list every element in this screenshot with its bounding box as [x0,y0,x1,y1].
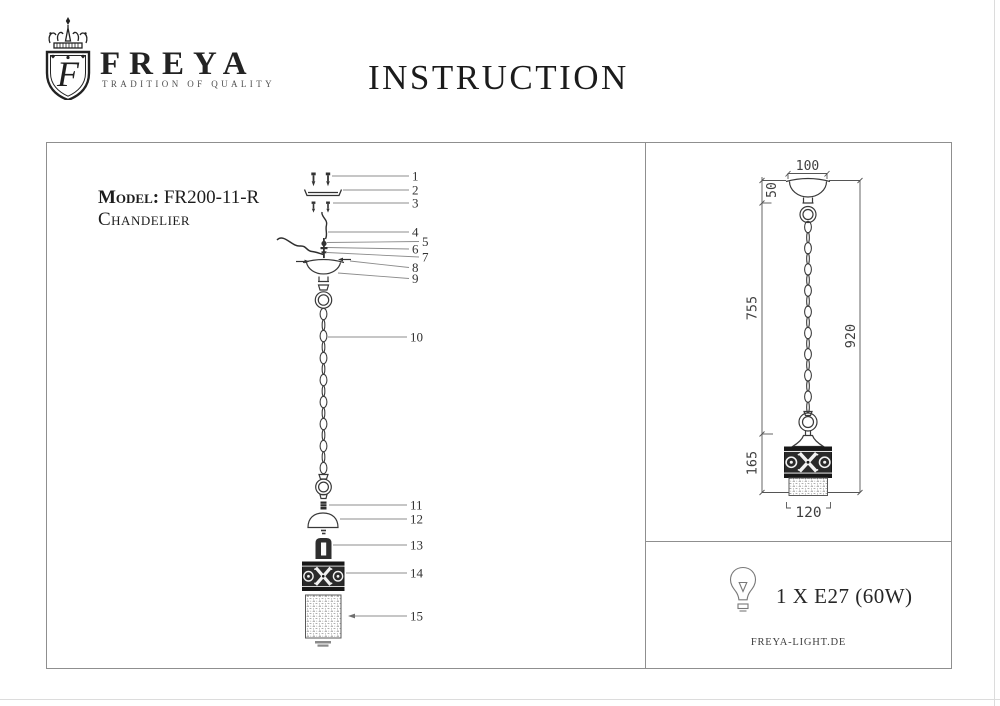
part-label: 15 [410,609,423,624]
instruction-page: F FREYA TRADITION OF QUALITY INSTRUCTION… [0,0,1000,706]
part-label: 13 [410,538,423,553]
chain [805,221,812,412]
part-label: 11 [410,498,423,513]
ornate-band [784,447,832,479]
stem-fittings [321,238,328,258]
lamp-spec: 1 X E27 (60W) [776,584,913,609]
dim-chain-length: 755 [745,296,761,320]
chain-loop-top [315,285,331,308]
part-label: 4 [412,225,419,240]
threaded-nipple [321,502,327,510]
leader-lines [327,176,419,618]
dim-canopy-height: 50 [765,182,780,198]
chain-loop-bottom [316,475,332,499]
mounting-screws-top [311,173,330,187]
dim-overall-height: 920 [843,324,859,348]
part-label: 3 [412,196,419,211]
fixture-outline [786,179,830,223]
part-label: 9 [412,271,419,286]
bulb-icon [728,566,758,622]
part-label: 10 [410,330,423,345]
lamp-spec-panel: 1 X E27 (60W) FREYA-LIGHT.DE [646,542,951,668]
website: FREYA-LIGHT.DE [646,637,951,648]
freya-crest-icon: F [44,14,92,100]
right-panel: 100 50 755 920 165 120 1 X E27 (60W) FRE… [645,142,952,669]
brand-name: FREYA [100,46,256,83]
dome-cap [308,513,338,534]
exploded-view-panel: Model: FR200-11-R Chandelier [46,142,646,669]
power-cable [277,238,324,254]
freya-logo: F FREYA TRADITION OF QUALITY [40,13,300,108]
brand-monogram: F [56,54,80,94]
page-title: INSTRUCTION [368,58,629,98]
dimensions-panel: 100 50 755 920 165 120 [646,143,951,542]
part-label: 5 [422,234,429,249]
chain [320,308,327,473]
dimension-diagram: 100 50 755 920 165 120 [646,143,951,541]
lamp-socket [316,538,332,559]
brand-tagline: TRADITION OF QUALITY [102,79,275,89]
part-label: 1 [412,169,419,184]
dim-body-width: 120 [795,505,821,521]
glass-shade [306,595,342,638]
bulb-base-hint [315,641,331,647]
part-number-labels: 1 2 3 4 5 6 7 8 9 10 11 12 13 14 15 [410,169,429,624]
dim-canopy-width: 100 [796,159,819,174]
ball-loop [793,412,824,447]
part-label: 6 [412,242,419,257]
scan-edge [994,0,995,706]
suspension-wire [322,212,327,239]
exploded-diagram: 1 2 3 4 5 6 7 8 9 10 11 12 13 14 15 [47,143,645,668]
dim-body-height: 165 [745,451,761,475]
canopy-dome [303,260,344,282]
part-label: 7 [422,250,429,265]
ornate-band [302,562,345,592]
scan-edge [0,699,1000,700]
part-label: 14 [410,566,424,581]
mounting-bracket [305,190,342,196]
glass-shade [789,478,828,496]
part-label: 12 [410,512,423,527]
mounting-screws-lower [312,202,330,213]
